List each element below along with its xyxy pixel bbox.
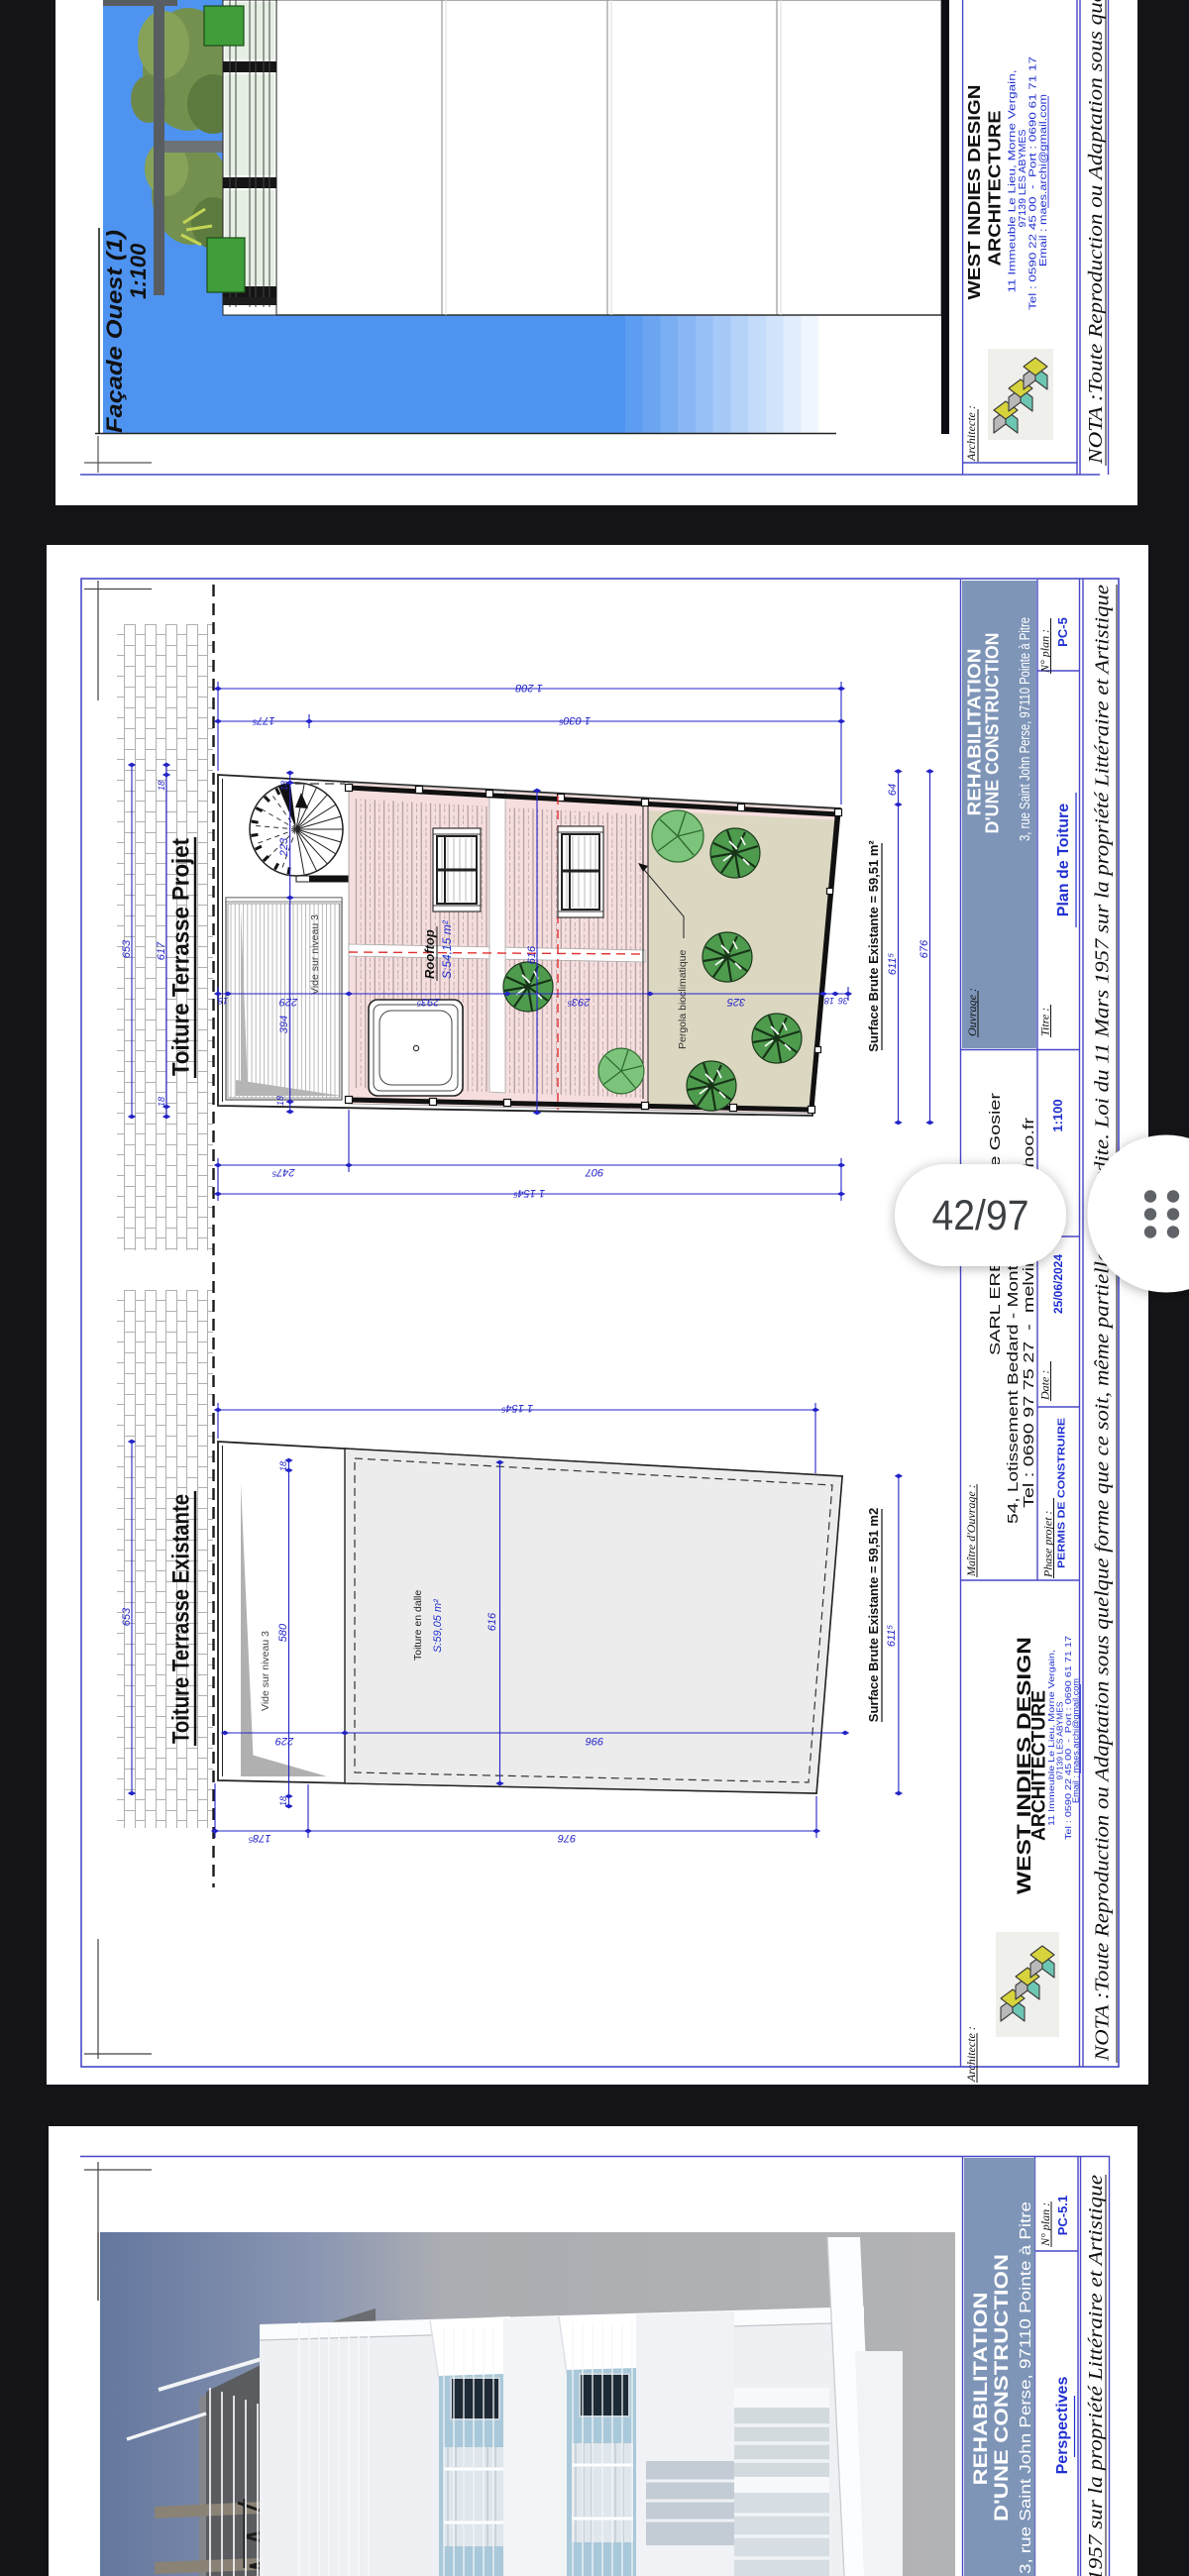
svg-text:653: 653 xyxy=(121,1607,133,1626)
svg-text:223: 223 xyxy=(278,837,290,857)
svg-text:Perspectives: Perspectives xyxy=(1054,2377,1071,2475)
svg-text:Date :: Date : xyxy=(1038,1370,1052,1401)
svg-text:Maître d'Ouvrage :: Maître d'Ouvrage : xyxy=(964,1484,978,1577)
svg-text:580: 580 xyxy=(277,1623,289,1642)
svg-text:ARCHITECTURE: ARCHITECTURE xyxy=(985,111,1005,267)
svg-text:Vide sur niveau 3: Vide sur niveau 3 xyxy=(260,1631,271,1711)
svg-text:Architecte :: Architecte : xyxy=(964,405,978,462)
svg-text:N° plan :: N° plan : xyxy=(1038,629,1052,674)
svg-text:1 154⁵: 1 154⁵ xyxy=(513,1187,546,1199)
svg-text:611⁵: 611⁵ xyxy=(886,1625,898,1648)
svg-text:247⁵: 247⁵ xyxy=(271,1166,295,1178)
svg-text:NOTA :Toute Reproduction ou Ad: NOTA :Toute Reproduction ou Adaptation s… xyxy=(1092,585,1114,2062)
svg-text:996: 996 xyxy=(585,1735,603,1747)
svg-text:36: 36 xyxy=(838,996,848,1006)
svg-text:177⁵: 177⁵ xyxy=(252,714,274,726)
svg-text:1:100: 1:100 xyxy=(1050,1099,1065,1131)
svg-text:3, rue Saint John Perse, 97110: 3, rue Saint John Perse, 97110 Pointe à … xyxy=(1018,2201,1034,2574)
svg-text:1 030⁵: 1 030⁵ xyxy=(559,714,592,726)
svg-text:229: 229 xyxy=(275,1735,294,1747)
svg-text:617: 617 xyxy=(156,941,167,960)
svg-text:907: 907 xyxy=(585,1166,603,1178)
svg-text:1 154⁵: 1 154⁵ xyxy=(501,1402,534,1414)
svg-text:D'UNE CONSTRUCTION: D'UNE CONSTRUCTION xyxy=(983,633,1003,834)
svg-text:18: 18 xyxy=(157,1097,166,1107)
svg-text:NOTA :Toute Reproduction ou Ad: NOTA :Toute Reproduction ou Adaptation s… xyxy=(1085,0,1107,465)
svg-text:616: 616 xyxy=(526,945,538,964)
svg-text:Toiture en dalle: Toiture en dalle xyxy=(412,1590,424,1661)
svg-text:PC-5.1: PC-5.1 xyxy=(1055,2196,1070,2235)
svg-text:Phase projet :: Phase projet : xyxy=(1041,1510,1055,1578)
svg-text:REHABILITATION: REHABILITATION xyxy=(965,649,985,816)
svg-text:18: 18 xyxy=(278,1461,288,1471)
svg-text:616: 616 xyxy=(486,1612,498,1631)
svg-text:Façade Ouest (1): Façade Ouest (1) xyxy=(102,230,127,433)
svg-text:Surface Brute Existante = 59,5: Surface Brute Existante = 59,51 m2 xyxy=(866,1508,881,1722)
svg-text:676: 676 xyxy=(919,939,930,958)
svg-text:976: 976 xyxy=(557,1832,576,1844)
svg-text:18: 18 xyxy=(824,996,834,1006)
svg-text:178⁵: 178⁵ xyxy=(248,1832,270,1844)
svg-text:394: 394 xyxy=(278,1016,290,1033)
svg-text:653: 653 xyxy=(121,939,133,958)
svg-text:Pergola bioclimatique: Pergola bioclimatique xyxy=(677,949,689,1049)
svg-text:Plan de Toiture: Plan de Toiture xyxy=(1055,804,1072,916)
svg-text:WEST INDIES DESIGN: WEST INDIES DESIGN xyxy=(964,85,984,300)
svg-text:3, rue Saint John Perse, 97110: 3, rue Saint John Perse, 97110 Pointe à … xyxy=(1017,617,1033,841)
svg-text:Titre :: Titre : xyxy=(1038,1008,1052,1036)
svg-text:D'UNE CONSTRUCTION: D'UNE CONSTRUCTION xyxy=(992,2254,1013,2522)
svg-text:Toiture Terrasse Projet: Toiture Terrasse Projet xyxy=(168,838,195,1076)
svg-text:18: 18 xyxy=(278,1796,288,1806)
svg-text:Vide sur niveau 3: Vide sur niveau 3 xyxy=(309,914,321,995)
svg-text:Rooftop: Rooftop xyxy=(422,929,437,979)
svg-text:64: 64 xyxy=(887,784,899,796)
svg-text:PC-5: PC-5 xyxy=(1055,617,1070,647)
svg-text:NOTA :Toute Reproduction ou Ad: NOTA :Toute Reproduction ou Adaptation s… xyxy=(1085,2175,1107,2576)
svg-text:18: 18 xyxy=(275,1096,285,1106)
svg-text:229: 229 xyxy=(279,996,298,1008)
svg-text:325: 325 xyxy=(726,996,745,1008)
svg-text:REHABILITATION: REHABILITATION xyxy=(971,2293,992,2486)
svg-text:Toiture Terrasse Existante: Toiture Terrasse Existante xyxy=(168,1494,195,1744)
svg-text:42/97: 42/97 xyxy=(932,1192,1029,1239)
svg-text:1 208: 1 208 xyxy=(514,682,542,694)
svg-text:25/06/2024: 25/06/2024 xyxy=(1051,1254,1065,1314)
svg-text:Surface Brute Existante = 59,5: Surface Brute Existante = 59,51 m² xyxy=(866,840,881,1052)
svg-text:Email : maes.archi@gmail.com: Email : maes.archi@gmail.com xyxy=(1037,94,1049,267)
svg-text:18: 18 xyxy=(279,781,289,791)
svg-text:PERMIS DE CONSTRUIRE: PERMIS DE CONSTRUIRE xyxy=(1056,1418,1068,1568)
svg-text:Architecte :: Architecte : xyxy=(964,2026,978,2083)
svg-text:Email : maes.archi@gmail.com: Email : maes.archi@gmail.com xyxy=(1071,1678,1081,1803)
svg-text:293⁵: 293⁵ xyxy=(567,996,591,1008)
svg-text:611⁵: 611⁵ xyxy=(887,953,899,976)
svg-text:S:59,05 m²: S:59,05 m² xyxy=(432,1599,444,1653)
svg-text:1:100: 1:100 xyxy=(126,243,151,299)
svg-text:N° plan :: N° plan : xyxy=(1038,2202,1052,2247)
svg-text:18: 18 xyxy=(218,996,228,1006)
svg-text:S:54,15 m²: S:54,15 m² xyxy=(440,919,454,979)
svg-text:18: 18 xyxy=(157,781,166,791)
svg-text:293⁵: 293⁵ xyxy=(416,996,440,1008)
svg-text:Ouvrage :: Ouvrage : xyxy=(965,988,979,1036)
